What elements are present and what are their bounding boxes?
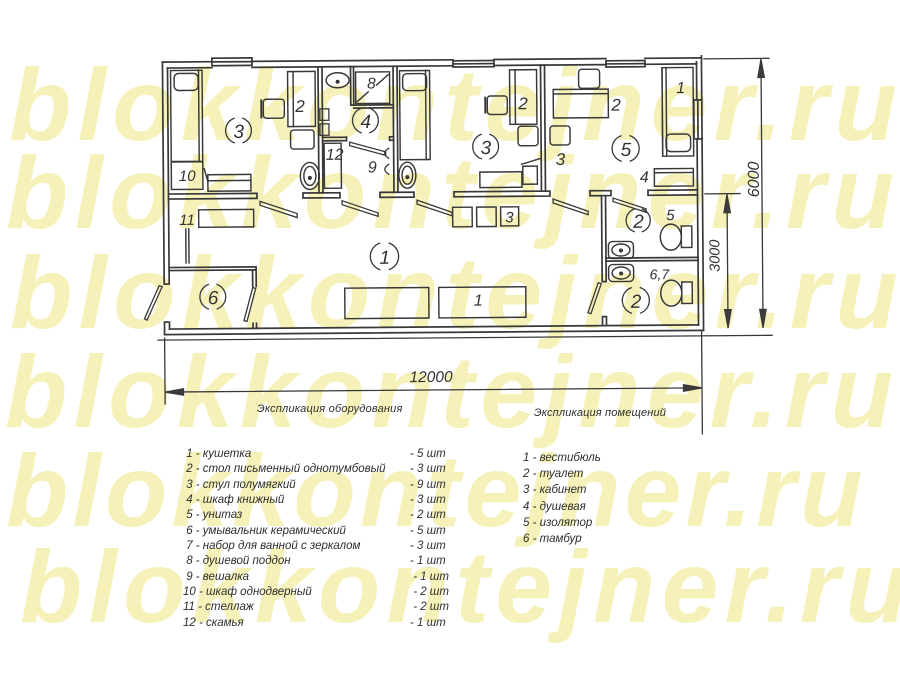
svg-text:2: 2 [610, 95, 621, 114]
svg-text:3000: 3000 [707, 240, 723, 272]
svg-text:4: 4 [640, 169, 649, 186]
svg-text:3: 3 [556, 150, 566, 169]
svg-text:4: 4 [360, 112, 371, 133]
svg-text:2: 2 [632, 212, 644, 233]
svg-text:12000: 12000 [409, 369, 453, 386]
svg-text:12: 12 [326, 147, 344, 164]
svg-text:2: 2 [630, 292, 642, 313]
svg-text:1: 1 [474, 293, 483, 310]
svg-text:8: 8 [367, 75, 376, 92]
svg-text:6: 6 [208, 288, 219, 309]
svg-text:3: 3 [233, 122, 244, 143]
svg-text:1: 1 [379, 248, 390, 269]
svg-text:2: 2 [294, 97, 305, 116]
svg-text:5: 5 [621, 140, 632, 161]
svg-text:3: 3 [505, 209, 514, 226]
svg-text:3: 3 [481, 138, 492, 159]
svg-text:6,7: 6,7 [650, 266, 671, 282]
svg-text:11: 11 [179, 212, 195, 229]
svg-text:6000: 6000 [746, 161, 763, 197]
svg-text:9: 9 [368, 159, 377, 176]
svg-text:2: 2 [517, 94, 528, 113]
svg-text:1: 1 [676, 80, 685, 97]
svg-text:5: 5 [666, 207, 675, 224]
svg-text:10: 10 [179, 168, 196, 185]
